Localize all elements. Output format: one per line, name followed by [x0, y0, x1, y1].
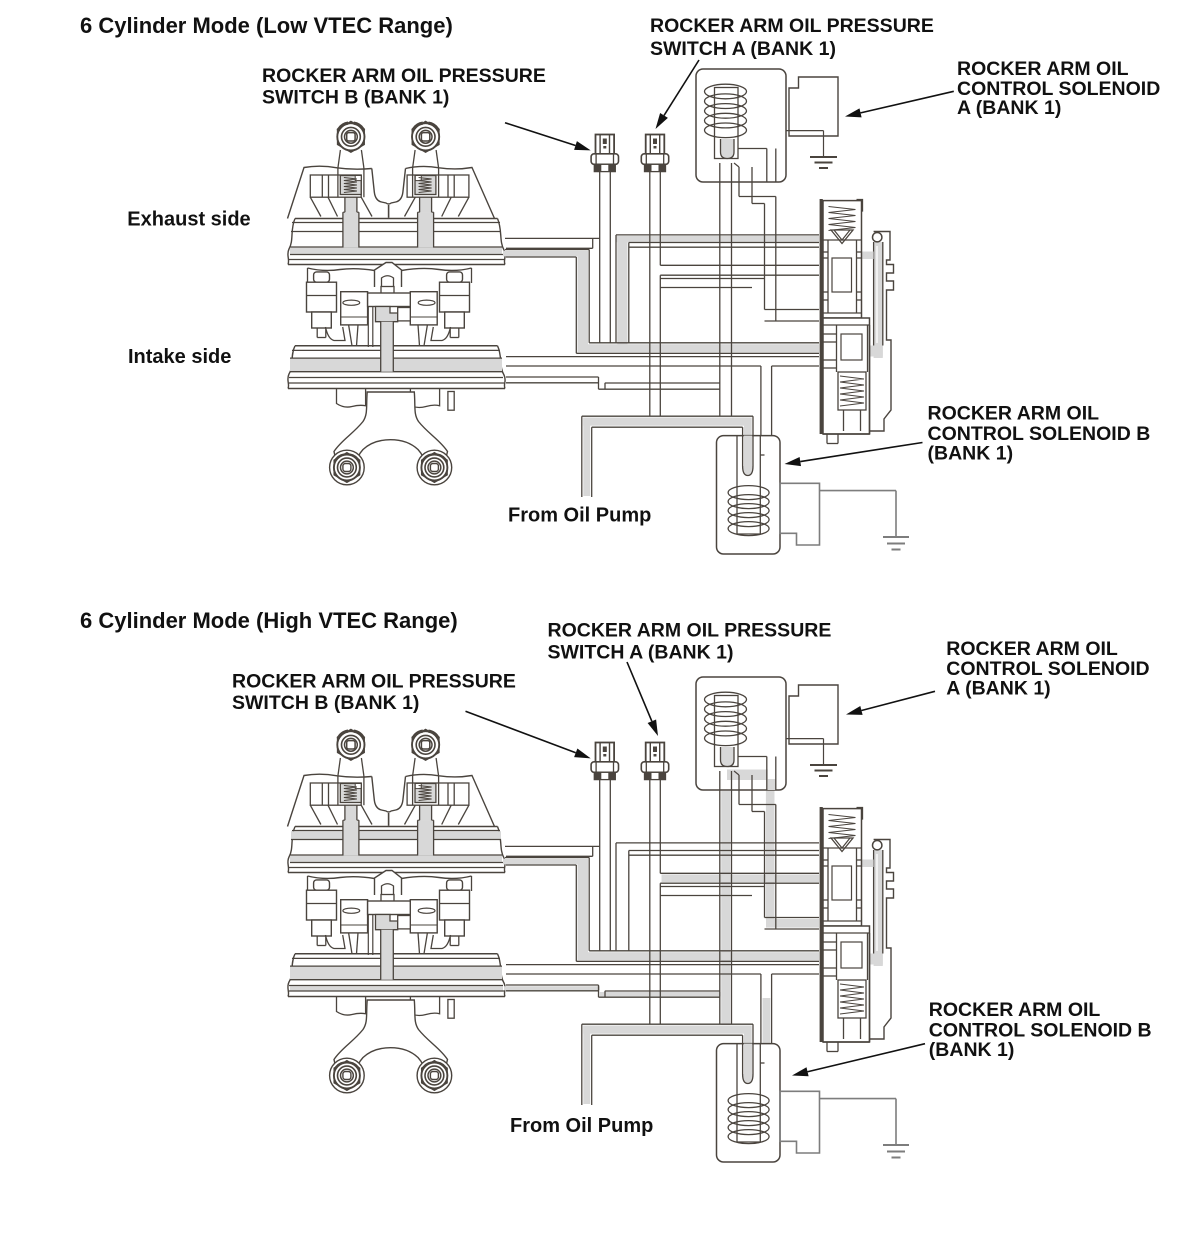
svg-text:SWITCH B (BANK 1): SWITCH B (BANK 1)	[262, 87, 449, 109]
svg-text:ROCKER ARM OIL PRESSURE: ROCKER ARM OIL PRESSURE	[262, 65, 546, 87]
svg-text:ROCKER ARM OIL PRESSURE: ROCKER ARM OIL PRESSURE	[548, 619, 832, 641]
svg-text:ROCKER ARM OIL: ROCKER ARM OIL	[928, 402, 1100, 424]
svg-text:SWITCH A (BANK 1): SWITCH A (BANK 1)	[650, 38, 836, 60]
svg-text:ROCKER ARM OIL: ROCKER ARM OIL	[957, 58, 1129, 80]
svg-text:(BANK 1): (BANK 1)	[928, 442, 1014, 464]
svg-text:ROCKER ARM OIL: ROCKER ARM OIL	[929, 999, 1101, 1021]
svg-text:(BANK 1): (BANK 1)	[929, 1039, 1015, 1061]
svg-text:ROCKER ARM OIL: ROCKER ARM OIL	[946, 638, 1118, 660]
svg-text:Intake side: Intake side	[128, 346, 231, 368]
svg-text:ROCKER ARM OIL PRESSURE: ROCKER ARM OIL PRESSURE	[650, 15, 934, 37]
svg-text:A (BANK 1): A (BANK 1)	[957, 97, 1061, 119]
svg-text:6 Cylinder Mode (Low VTEC Rang: 6 Cylinder Mode (Low VTEC Range)	[80, 13, 453, 38]
svg-text:ROCKER ARM OIL PRESSURE: ROCKER ARM OIL PRESSURE	[232, 671, 516, 693]
svg-text:A (BANK 1): A (BANK 1)	[946, 678, 1050, 700]
svg-text:SWITCH B (BANK 1): SWITCH B (BANK 1)	[232, 692, 419, 714]
svg-text:6 Cylinder Mode (High VTEC Ran: 6 Cylinder Mode (High VTEC Range)	[80, 608, 458, 633]
svg-text:From Oil Pump: From Oil Pump	[510, 1115, 653, 1137]
svg-text:Exhaust side: Exhaust side	[127, 209, 250, 231]
svg-text:From Oil Pump: From Oil Pump	[508, 504, 651, 526]
svg-text:SWITCH A (BANK 1): SWITCH A (BANK 1)	[548, 642, 734, 664]
